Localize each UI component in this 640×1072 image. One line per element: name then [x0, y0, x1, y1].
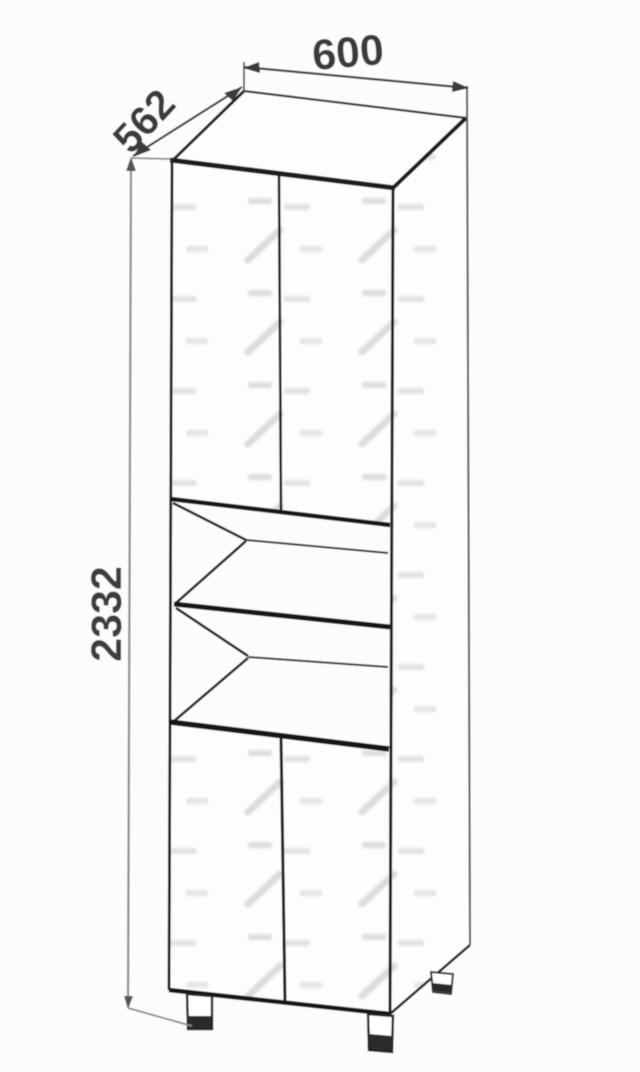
- svg-text:2332: 2332: [83, 566, 131, 662]
- svg-text:600: 600: [310, 26, 386, 80]
